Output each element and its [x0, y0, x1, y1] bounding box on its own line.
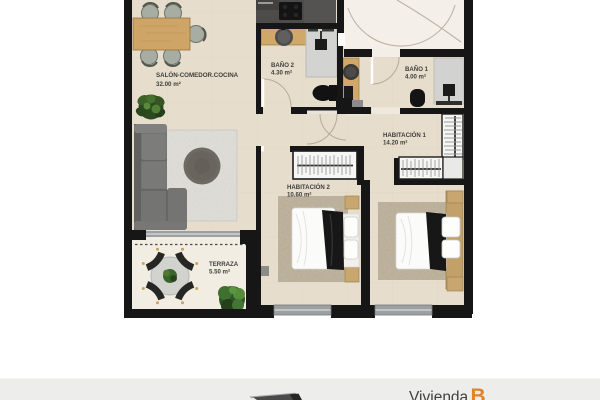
svg-text:BAÑO 1: BAÑO 1 [405, 66, 429, 73]
svg-text:TERRAZA: TERRAZA [209, 261, 239, 268]
svg-text:10.60 m²: 10.60 m² [287, 192, 311, 199]
svg-text:4.30 m²: 4.30 m² [271, 70, 292, 77]
svg-text:B: B [471, 385, 486, 400]
svg-text:4.00 m²: 4.00 m² [405, 74, 426, 81]
svg-text:SALÓN-COMEDOR.COCINA: SALÓN-COMEDOR.COCINA [156, 71, 239, 79]
svg-text:32.00 m²: 32.00 m² [156, 81, 181, 88]
svg-text:5.50 m²: 5.50 m² [209, 269, 230, 276]
svg-text:Vivienda: Vivienda [409, 389, 469, 400]
svg-text:14.20 m²: 14.20 m² [383, 140, 407, 147]
svg-text:BAÑO 2: BAÑO 2 [271, 62, 295, 69]
svg-text:HABITACIÓN 1: HABITACIÓN 1 [383, 131, 426, 139]
svg-text:HABITACIÓN 2: HABITACIÓN 2 [287, 183, 330, 191]
